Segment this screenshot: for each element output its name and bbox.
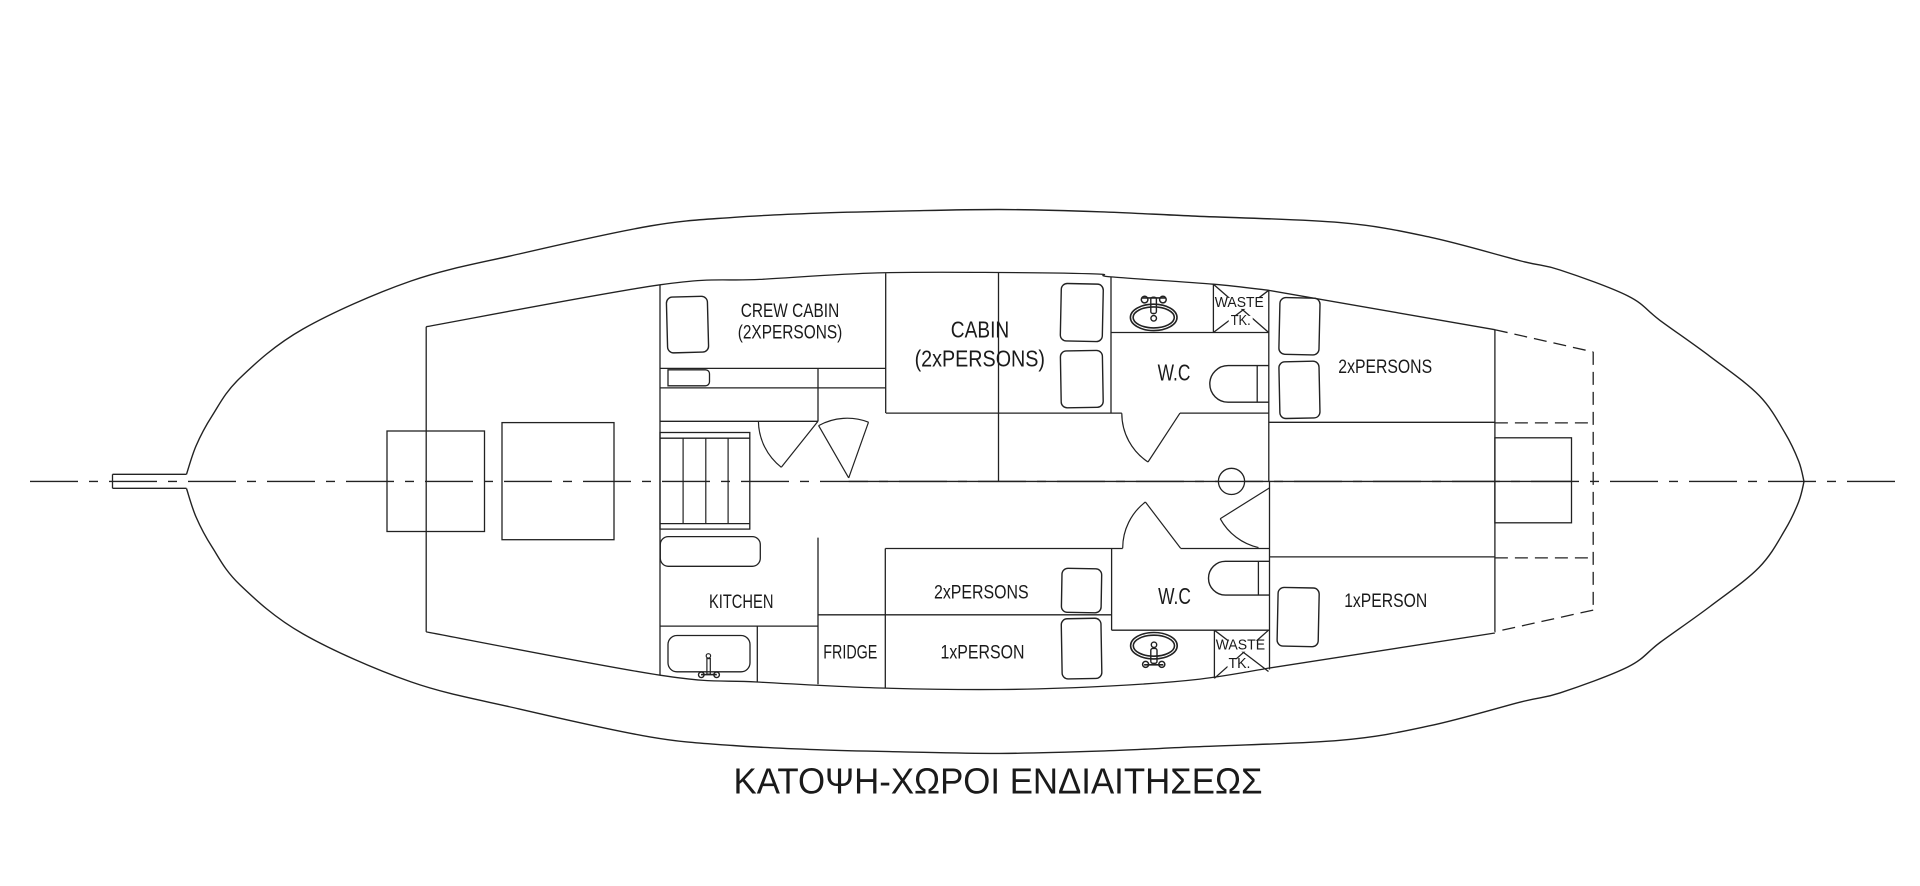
svg-text:2xPERSONS: 2xPERSONS <box>934 581 1029 603</box>
svg-text:TK.: TK. <box>1231 313 1251 329</box>
svg-text:1xPERSON: 1xPERSON <box>1344 590 1427 612</box>
svg-text:ΚΑΤΟΨΗ-ΧΩΡΟΙ ΕΝΔΙΑΙΤΗΣΕΩΣ: ΚΑΤΟΨΗ-ΧΩΡΟΙ ΕΝΔΙΑΙΤΗΣΕΩΣ <box>734 761 1263 802</box>
svg-text:FRIDGE: FRIDGE <box>823 642 877 664</box>
svg-text:CABIN: CABIN <box>951 317 1009 343</box>
svg-text:WASTE: WASTE <box>1215 295 1264 311</box>
svg-text:2xPERSONS: 2xPERSONS <box>1338 356 1432 378</box>
svg-text:(2XPERSONS): (2XPERSONS) <box>738 323 843 344</box>
svg-text:KITCHEN: KITCHEN <box>709 591 774 613</box>
svg-text:CREW CABIN: CREW CABIN <box>741 301 839 322</box>
svg-text:(2xPERSONS): (2xPERSONS) <box>915 345 1045 371</box>
svg-text:W.C: W.C <box>1158 583 1191 609</box>
svg-text:WASTE: WASTE <box>1216 638 1266 654</box>
svg-text:W.C: W.C <box>1158 359 1191 385</box>
svg-text:1xPERSON: 1xPERSON <box>941 642 1025 664</box>
svg-text:TK.: TK. <box>1229 656 1251 672</box>
